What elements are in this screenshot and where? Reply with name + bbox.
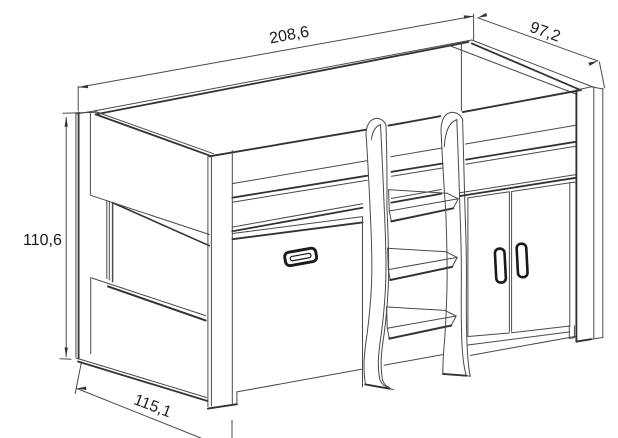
svg-text:110,6: 110,6 — [23, 232, 62, 249]
svg-text:115,1: 115,1 — [131, 392, 173, 422]
svg-text:208,6: 208,6 — [268, 24, 311, 48]
